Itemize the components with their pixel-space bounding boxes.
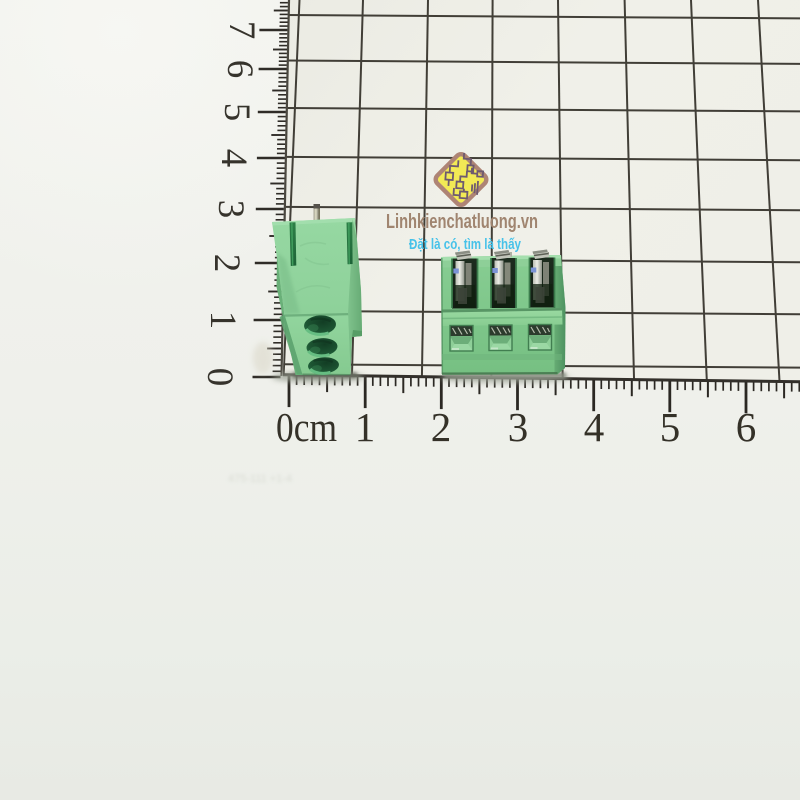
svg-text:7: 7: [221, 21, 262, 40]
svg-text:5: 5: [216, 103, 257, 122]
svg-text:6: 6: [219, 60, 260, 79]
svg-text:2: 2: [431, 404, 452, 450]
svg-text:3: 3: [210, 200, 251, 219]
svg-text:475-111 +1-4: 475-111 +1-4: [228, 473, 292, 485]
svg-text:3: 3: [508, 404, 529, 450]
svg-text:Linhkienchatluong.vn: Linhkienchatluong.vn: [386, 210, 538, 233]
svg-text:2: 2: [206, 254, 247, 273]
svg-text:0: 0: [199, 368, 240, 387]
svg-text:1: 1: [355, 404, 376, 450]
svg-text:4: 4: [584, 404, 605, 450]
svg-text:Đặt là có, tìm là thấy: Đặt là có, tìm là thấy: [409, 236, 522, 253]
svg-text:6: 6: [736, 404, 757, 450]
svg-text:5: 5: [660, 404, 681, 450]
svg-text:0cm: 0cm: [276, 404, 337, 450]
svg-text:1: 1: [202, 311, 243, 330]
svg-text:4: 4: [213, 149, 254, 168]
